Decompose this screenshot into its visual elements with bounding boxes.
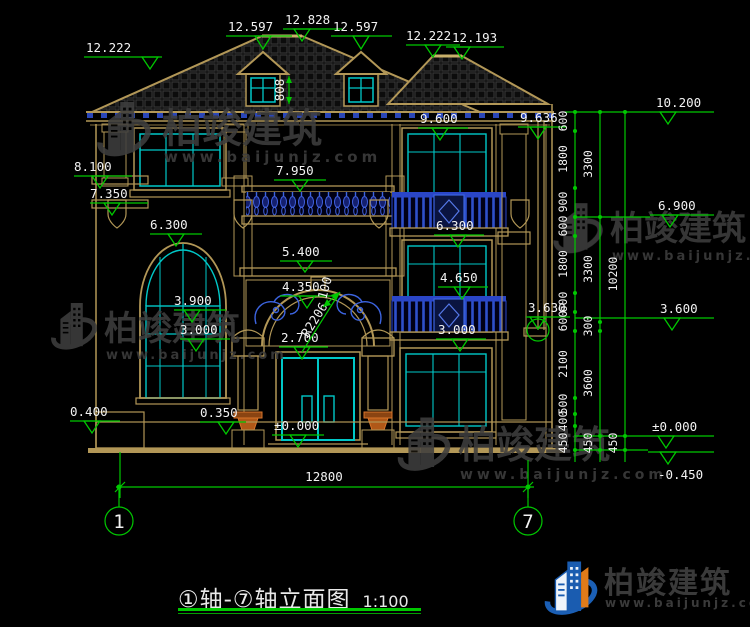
level-label: 12.222 xyxy=(86,40,131,55)
elevation-level-symbols: 10.200 6.900 3.600 ±0.000 -0.450 xyxy=(646,95,714,482)
svg-text:3600: 3600 xyxy=(581,369,595,397)
svg-text:3300: 3300 xyxy=(581,150,595,178)
level-label: 3.600 xyxy=(660,301,698,316)
overall-width-label: 12800 xyxy=(305,469,343,484)
chain-inner-labels: 600 1800 900 600 1800 600 600 2100 500 4… xyxy=(556,111,570,454)
level-label: 12.193 xyxy=(452,30,497,45)
svg-text:900: 900 xyxy=(556,192,570,213)
level-label: ±0.000 xyxy=(274,418,319,433)
watermark-url: www.baijunjz.com xyxy=(164,148,381,166)
building-elevation xyxy=(86,36,564,453)
brand-footer: 柏竣建筑 www.baijunjz.com xyxy=(542,556,747,622)
watermark-url: www.baijunjz.com xyxy=(460,467,667,483)
svg-text:10200: 10200 xyxy=(606,257,620,292)
level-label: 12.222 xyxy=(406,28,451,43)
level-label: 12.828 xyxy=(285,12,330,27)
level-label: 6.900 xyxy=(658,198,696,213)
svg-text:1800: 1800 xyxy=(556,145,570,173)
svg-text:450: 450 xyxy=(606,433,620,454)
level-label: 3.000 xyxy=(180,322,218,337)
level-label: ±0.000 xyxy=(652,419,697,434)
dim-label: 808 xyxy=(272,79,287,102)
svg-text:600: 600 xyxy=(556,111,570,132)
svg-text:450: 450 xyxy=(581,433,595,454)
svg-text:600: 600 xyxy=(556,216,570,237)
chain-mid-labels: 3300 3300 300 3600 450 xyxy=(581,150,595,453)
level-label: 4.650 xyxy=(440,270,478,285)
title-underline-thin xyxy=(178,613,421,614)
watermark-url: www.baijunjz.com xyxy=(612,249,750,264)
left-wing xyxy=(92,124,248,448)
level-label: 5.400 xyxy=(282,244,320,259)
level-label: 9.600 xyxy=(420,111,458,126)
svg-text:1800: 1800 xyxy=(556,250,570,278)
level-label: -0.450 xyxy=(658,467,703,482)
brand-url: www.baijunjz.com xyxy=(605,596,750,610)
axis-number: 7 xyxy=(522,511,533,533)
level-label: 12.597 xyxy=(228,19,273,34)
svg-text:400: 400 xyxy=(556,411,570,432)
level-label: 6.300 xyxy=(150,217,188,232)
level-label: 8.100 xyxy=(74,159,112,174)
svg-text:300: 300 xyxy=(581,316,595,337)
brand-logo-icon xyxy=(542,556,600,622)
level-label: 3.900 xyxy=(174,293,212,308)
axis-number: 1 xyxy=(113,511,124,533)
svg-text:2100: 2100 xyxy=(556,350,570,378)
level-label: 0.350 xyxy=(200,405,238,420)
level-label: 3.000 xyxy=(438,322,476,337)
watermark-text: 柏竣建筑 xyxy=(104,309,240,349)
right-1f-window xyxy=(400,348,492,432)
cad-elevation-screenshot: 柏竣建筑 www.baijunjz.com 柏竣建筑 www.baijunjz.… xyxy=(0,0,750,627)
elevation-drawing: 柏竣建筑 www.baijunjz.com 柏竣建筑 www.baijunjz.… xyxy=(0,0,750,627)
level-label: 7.950 xyxy=(276,163,314,178)
svg-text:600: 600 xyxy=(556,311,570,332)
level-label: 4.350 xyxy=(282,279,320,294)
level-label: 12.597 xyxy=(333,19,378,34)
right-hip-roof xyxy=(388,56,548,104)
level-label: 9.636 xyxy=(520,110,558,125)
svg-text:600: 600 xyxy=(556,292,570,313)
svg-text:3300: 3300 xyxy=(581,255,595,283)
title-underline xyxy=(178,608,421,611)
level-label: 10.200 xyxy=(656,95,701,110)
watermark-text: 柏竣建筑 xyxy=(162,106,322,152)
level-label: 6.300 xyxy=(436,218,474,233)
level-label: 0.400 xyxy=(70,404,108,419)
level-label: 7.350 xyxy=(90,186,128,201)
dormer-dim: 808 xyxy=(272,76,292,104)
svg-text:450: 450 xyxy=(556,433,570,454)
